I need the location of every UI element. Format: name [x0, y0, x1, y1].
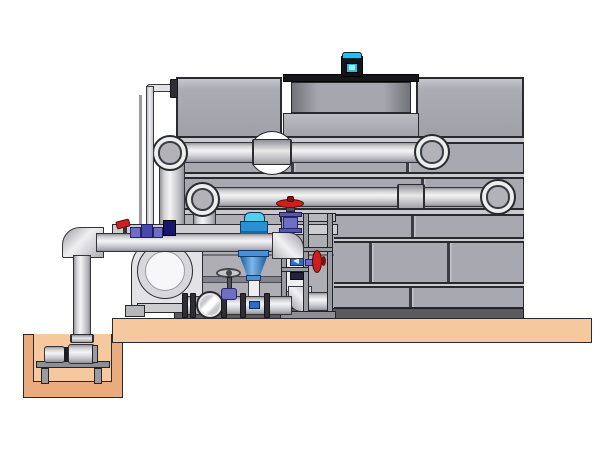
frame-dark-label — [290, 272, 304, 280]
basin-row-3 — [332, 287, 524, 308]
globe-valve-hub — [287, 196, 294, 202]
pipe-flange — [182, 293, 188, 318]
gauge-fitting — [130, 227, 141, 238]
tower-center-panel — [283, 113, 419, 137]
fan-cowl — [291, 82, 411, 113]
panel-seam — [411, 216, 414, 237]
globe-valve-body — [283, 217, 298, 229]
fan-motor-window-glare — [349, 65, 355, 70]
pit-riser-pipe — [73, 255, 91, 339]
panel-seam — [447, 243, 450, 282]
gate-valve-hub — [226, 270, 232, 276]
riser2-elbow-face — [185, 182, 220, 217]
check-valve-stripe — [200, 295, 220, 315]
gate-valve-body — [221, 288, 237, 300]
diffuser-top-flange — [238, 250, 269, 257]
tee-blue-label — [249, 301, 260, 309]
gauge-fitting — [141, 224, 153, 238]
basin-row-1 — [332, 215, 524, 238]
pit-pump-endcap — [92, 345, 98, 363]
pit-pump-body — [68, 344, 95, 364]
pump-suction-eye — [145, 251, 185, 291]
panel-seam — [409, 288, 412, 307]
check-valve — [196, 291, 224, 319]
pump-foot — [125, 305, 145, 317]
upper-pipe — [169, 142, 433, 163]
pit-pump-stand-leg — [94, 368, 102, 384]
makeup-line-flange — [170, 79, 178, 98]
tower-top-panel-right — [416, 77, 524, 138]
mini-valve-stem — [123, 227, 127, 234]
frame-post — [327, 213, 333, 316]
illustration-canvas — [0, 0, 600, 450]
pipe-flange — [240, 293, 246, 318]
panel-seam — [369, 243, 372, 282]
pit-riser-coupling — [70, 334, 94, 343]
platform — [112, 318, 592, 343]
pit-pump-stand-leg — [41, 368, 49, 384]
middle-pipe — [201, 187, 499, 207]
middle-pipe-coupling — [397, 184, 425, 209]
pit-pump-motor — [44, 346, 65, 363]
pipe-flange — [264, 293, 270, 318]
side-valve-nub — [321, 256, 326, 266]
riser1-elbow-face — [152, 135, 188, 171]
gauge-fitting — [153, 227, 163, 238]
middle-pipe-end-elbow — [480, 179, 516, 215]
upper-pipe-coupling — [252, 139, 292, 165]
diffuser-cap-body — [240, 221, 268, 234]
makeup-line-vertical — [146, 86, 154, 229]
basin-row-2 — [332, 242, 524, 283]
sensor-block — [163, 220, 176, 236]
standpipe-shadow — [139, 95, 142, 228]
globe-valve-flange — [279, 212, 302, 217]
fan-motor-cap — [342, 52, 362, 59]
upper-pipe-end-elbow — [414, 134, 450, 170]
tower-top-panel-left — [176, 77, 282, 138]
manifold-right-elbow — [272, 232, 304, 259]
